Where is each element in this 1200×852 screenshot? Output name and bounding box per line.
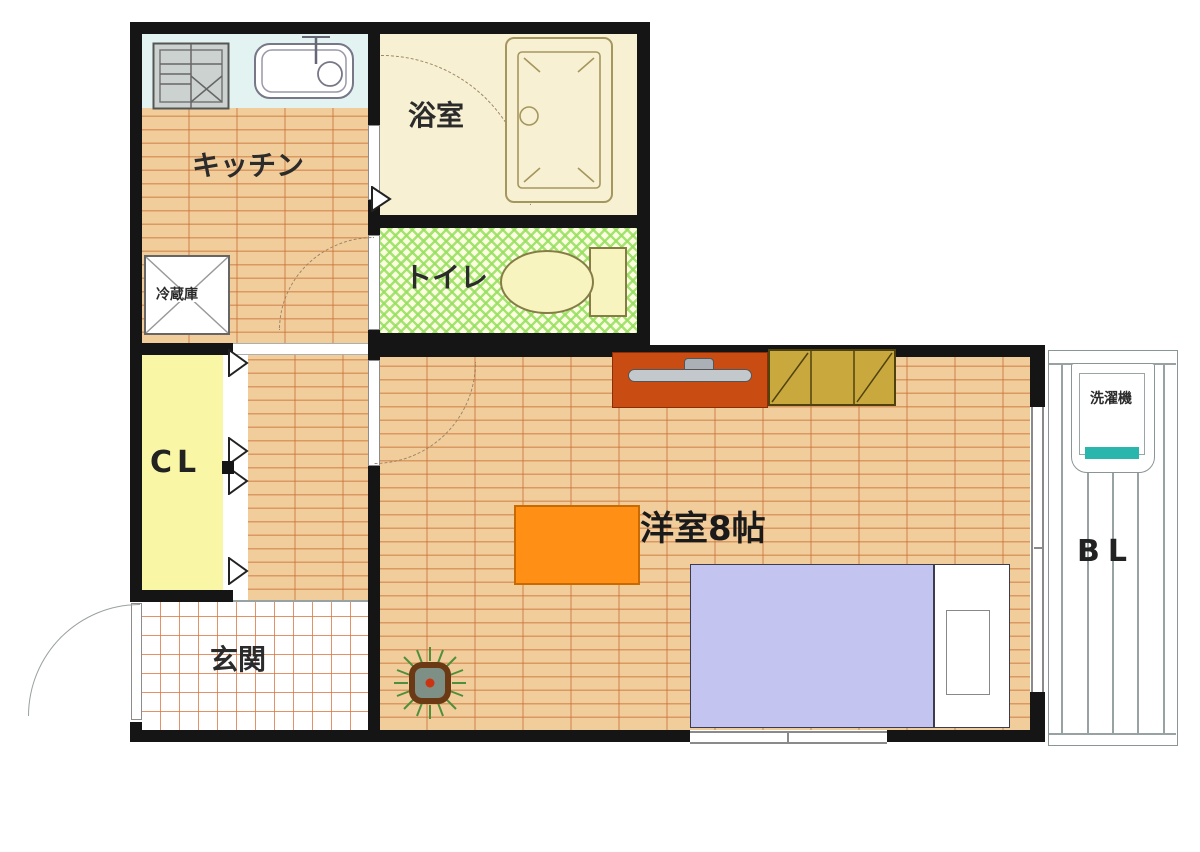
closet-door-icon (228, 349, 250, 377)
washing-machine-label: 洗濯機 (1090, 392, 1132, 406)
table (514, 505, 640, 585)
wall-main-right-2 (1030, 692, 1045, 742)
balcony: 洗濯機 BL (1048, 350, 1178, 746)
closet-door-icon (228, 557, 250, 585)
refrigerator-label: 冷蔵庫 (154, 288, 200, 302)
wall-right-of-bath (637, 22, 650, 357)
bathroom-door-marker-icon (371, 186, 393, 212)
plant-icon (392, 645, 468, 721)
bathroom-label: 浴室 (408, 102, 464, 130)
washing-machine: 洗濯機 (1071, 363, 1155, 473)
toilet-label: トイレ (404, 264, 488, 292)
cabinet-icon (768, 349, 896, 406)
wall-left-upper (130, 22, 142, 602)
sink-icon (252, 34, 356, 104)
entrance-door-arc (28, 604, 140, 716)
bed (690, 564, 1010, 728)
kitchen-label: キッチン (192, 152, 304, 180)
wall-top (130, 22, 650, 34)
washing-machine-inner (1079, 373, 1145, 455)
refrigerator-box: 冷蔵庫 (144, 255, 230, 335)
wall-closet-bottom (130, 590, 233, 602)
window-center-tick (787, 733, 789, 742)
floor-plan: 冷蔵庫 (0, 0, 1200, 852)
bed-blanket (690, 564, 934, 728)
tv-icon (628, 369, 752, 382)
wall-kitchen-bath-1 (368, 22, 380, 125)
toilet-icon (495, 243, 635, 323)
south-window (690, 731, 887, 744)
closet-door-hinge (222, 461, 234, 474)
main-room-label: 洋室8帖 (640, 512, 766, 546)
closet-label: CL (150, 448, 201, 478)
hallway-floor (248, 343, 368, 602)
bathtub-icon (504, 36, 614, 204)
balcony-board-line (1061, 363, 1063, 734)
wall-main-left-2 (368, 466, 380, 742)
balcony-board-line (1163, 363, 1165, 734)
balcony-sliding-window (1031, 407, 1044, 692)
entrance-step-line (233, 600, 368, 602)
wall-bath-toilet (368, 215, 650, 228)
wall-kitchen-closet (130, 343, 233, 355)
hall-kitchen-threshold (233, 343, 368, 355)
wall-toilet-bottom (368, 333, 650, 345)
wall-main-right-1 (1030, 345, 1045, 407)
window-center-tick (1034, 547, 1043, 549)
stove-icon (152, 42, 230, 110)
entrance-label: 玄関 (210, 646, 266, 674)
wall-bottom-1 (130, 730, 690, 742)
balcony-label: BL (1077, 537, 1135, 567)
pillow (946, 610, 990, 695)
washing-machine-accent (1085, 447, 1139, 459)
wall-bottom-2 (887, 730, 1045, 742)
